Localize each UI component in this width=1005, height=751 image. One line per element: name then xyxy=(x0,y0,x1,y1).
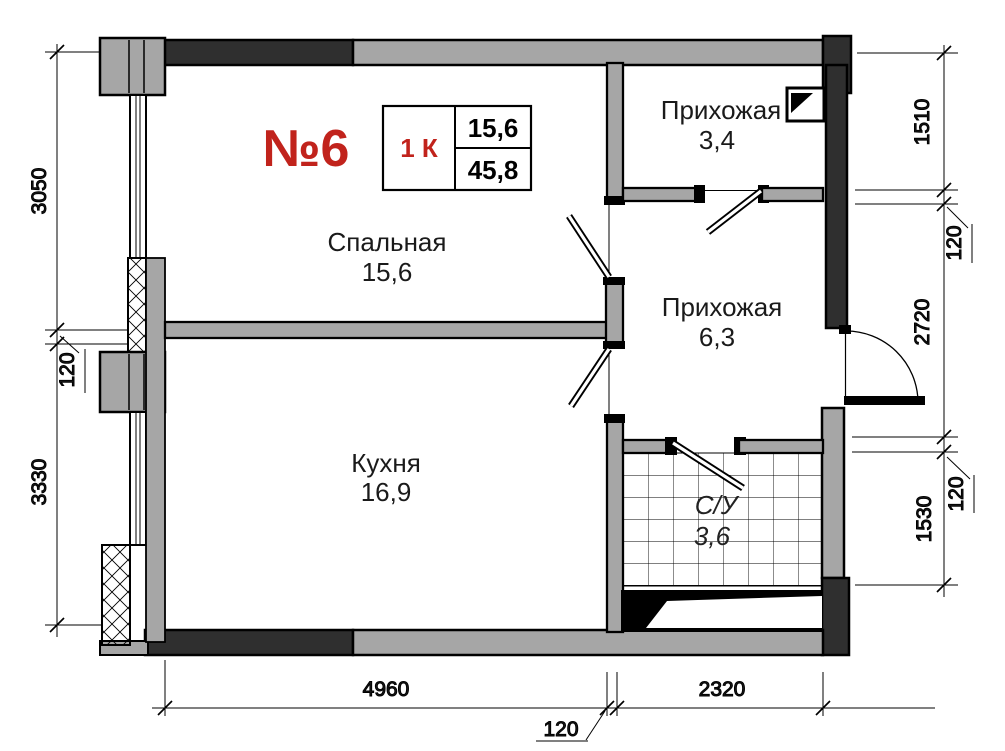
wall-bathroom-left xyxy=(623,440,671,453)
room-name-kitchen: Кухня xyxy=(351,448,421,478)
room-name-bathroom: С/У xyxy=(695,490,740,520)
wall-bedroom-kitchen xyxy=(165,322,609,338)
dim-bottom-right: 2320 xyxy=(699,678,746,701)
floor-plan-drawing: №6 1 К 15,6 45,8 Спальная 15,6 Кухня 16,… xyxy=(0,0,1005,751)
room-area-hallway: 6,3 xyxy=(699,322,735,352)
dimension-bottom: 4960 120 2320 xyxy=(152,660,935,741)
wall-central-top xyxy=(607,63,623,203)
wall-hallway-divider-right xyxy=(762,188,823,201)
dim-left-bottom: 3330 xyxy=(28,459,51,506)
room-name-hallway: Прихожая xyxy=(662,292,782,322)
left-wall-top-pier xyxy=(100,38,165,95)
dim-left-middle: 120 xyxy=(56,352,79,387)
right-wall-lower xyxy=(822,578,849,655)
room-area-hallway-small: 3,4 xyxy=(699,125,735,155)
dimension-right: 1510 120 2720 120 1530 xyxy=(852,45,974,597)
hatched-wall-lower xyxy=(102,545,130,645)
wall-bathroom-right xyxy=(739,440,823,453)
room-name-hallway-small: Прихожая xyxy=(661,95,781,125)
door-kitchen xyxy=(571,349,609,406)
room-area-bedroom: 15,6 xyxy=(362,257,413,287)
ventilation-block xyxy=(621,590,822,632)
room-name-bedroom: Спальная xyxy=(328,227,447,257)
wall-central-stub xyxy=(606,281,623,345)
dim-left-top: 3050 xyxy=(28,168,51,215)
room-area-kitchen: 16,9 xyxy=(361,477,412,507)
dim-bottom-middle: 120 xyxy=(543,718,578,741)
window-kitchen xyxy=(130,412,146,545)
wall-hallway-divider-left xyxy=(623,188,698,201)
door-bedroom xyxy=(569,216,609,277)
right-wall-middle xyxy=(822,408,844,578)
wall-cap xyxy=(604,414,625,423)
leader-line xyxy=(586,711,605,740)
left-wall-inner-face xyxy=(146,258,165,642)
room-count-cell: 1 К xyxy=(400,133,438,163)
floor-plan-page: №6 1 К 15,6 45,8 Спальная 15,6 Кухня 16,… xyxy=(0,0,1005,751)
wall-cap xyxy=(694,185,705,203)
dim-right-3: 2720 xyxy=(911,299,934,346)
dim-right-1: 1510 xyxy=(911,99,934,146)
bottom-wall-gray xyxy=(353,630,823,655)
leader-line xyxy=(947,207,968,228)
wall-central-bottom xyxy=(607,418,623,632)
vent-shaft-icon xyxy=(787,88,824,121)
dim-bottom-left: 4960 xyxy=(363,678,410,701)
apartment-number: №6 xyxy=(263,120,350,178)
dim-right-4: 120 xyxy=(945,476,968,511)
window-bedroom xyxy=(130,95,146,258)
total-area-cell: 45,8 xyxy=(468,155,519,185)
dim-right-5: 1530 xyxy=(913,496,936,543)
leader-line xyxy=(947,457,970,479)
dim-right-2: 120 xyxy=(943,225,966,260)
right-wall-upper xyxy=(826,65,847,328)
living-area-cell: 15,6 xyxy=(468,113,519,143)
top-wall-gray xyxy=(353,40,823,65)
wall-cap xyxy=(604,196,625,205)
room-area-bathroom: 3,6 xyxy=(694,521,731,551)
info-table: 1 К 15,6 45,8 xyxy=(383,106,531,190)
bottom-wall-dark xyxy=(145,630,353,655)
hatched-wall-upper xyxy=(128,258,146,352)
door-hallway xyxy=(708,191,761,232)
